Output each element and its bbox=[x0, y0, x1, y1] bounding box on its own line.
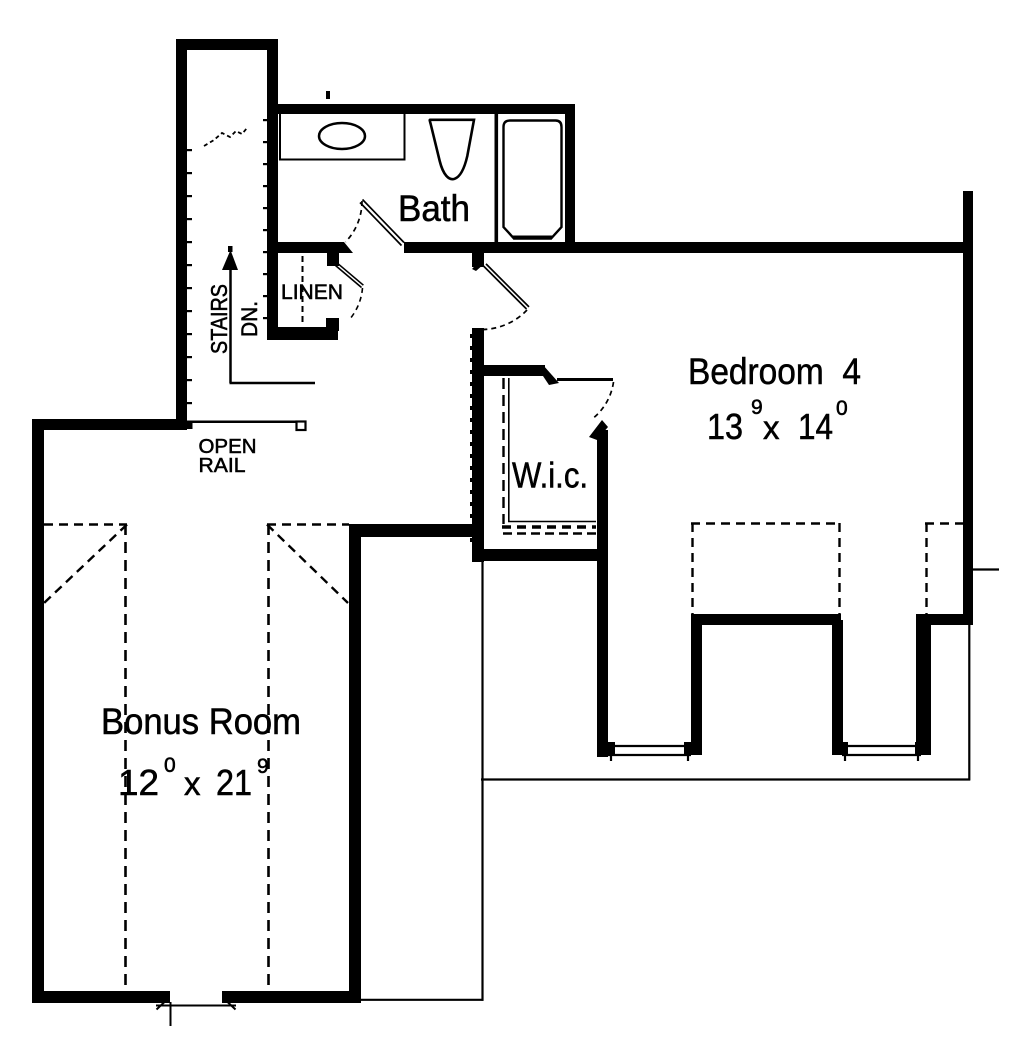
svg-text:x: x bbox=[763, 409, 780, 446]
svg-text:0: 0 bbox=[164, 754, 176, 777]
svg-text:Bath: Bath bbox=[398, 188, 470, 229]
svg-text:Bedroom 4: Bedroom 4 bbox=[688, 351, 861, 392]
svg-text:12: 12 bbox=[118, 762, 159, 803]
svg-text:x: x bbox=[184, 765, 201, 802]
svg-text:9: 9 bbox=[257, 755, 269, 778]
svg-text:W.i.c.: W.i.c. bbox=[512, 455, 588, 496]
svg-text:14: 14 bbox=[798, 406, 833, 447]
svg-text:RAIL: RAIL bbox=[199, 454, 246, 477]
svg-text:13: 13 bbox=[707, 406, 743, 447]
svg-text:DN.: DN. bbox=[237, 301, 262, 337]
svg-text:STAIRS: STAIRS bbox=[206, 284, 232, 354]
svg-text:Bonus Room: Bonus Room bbox=[101, 701, 301, 742]
svg-text:21: 21 bbox=[216, 762, 252, 803]
svg-text:9: 9 bbox=[751, 396, 763, 419]
svg-text:LINEN: LINEN bbox=[281, 281, 343, 304]
svg-text:0: 0 bbox=[836, 397, 848, 420]
